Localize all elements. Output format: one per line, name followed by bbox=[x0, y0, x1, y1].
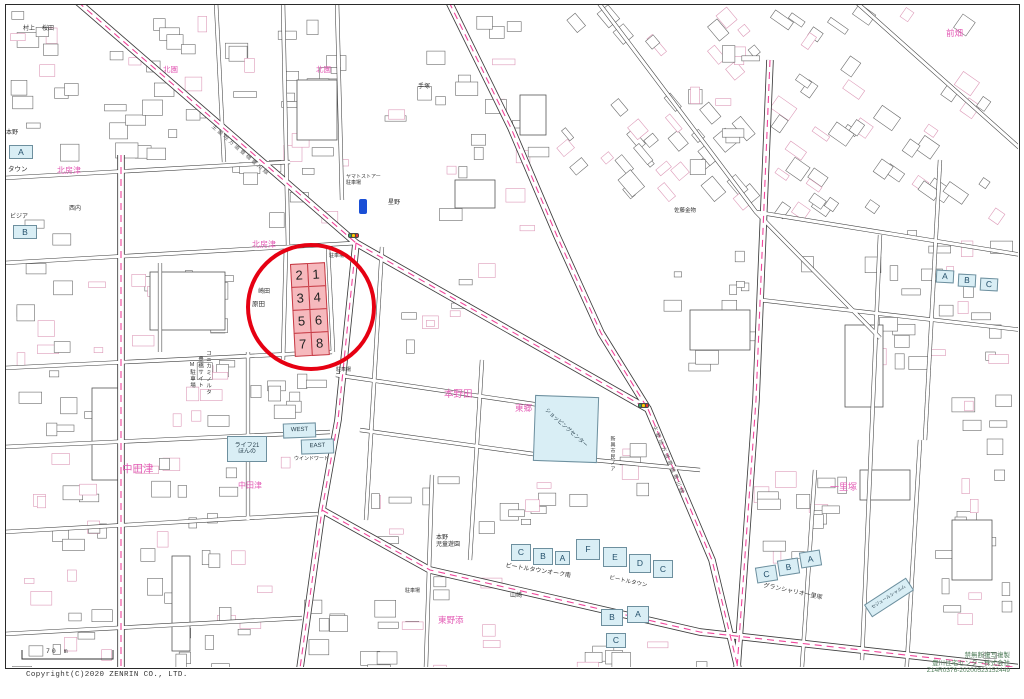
poi-label: M駐車場 bbox=[189, 362, 195, 389]
area-label: 北房津 bbox=[252, 241, 276, 250]
poi-label: 星野 bbox=[388, 200, 400, 207]
attribution-line-3: Z14R0376-20200523152449 bbox=[927, 667, 1010, 675]
poi-label: ヤマトストアー 駐車場 bbox=[346, 175, 381, 186]
poi-label: 村上 bbox=[23, 26, 35, 33]
highlight-circle bbox=[246, 243, 376, 371]
zenrin-map-page: WESTEASTライフ21 ほんのショッピングセンターセジュールシャルムCBAF… bbox=[0, 0, 1024, 699]
scale-bar-label: 70 m bbox=[46, 648, 70, 655]
poi-label: 駐車場 bbox=[405, 589, 420, 595]
poi-label: ビートルタウン bbox=[609, 575, 648, 589]
area-label: 中田津 bbox=[238, 482, 262, 491]
poi-label: ウインドワード bbox=[294, 457, 329, 463]
area-label: 東郷 bbox=[515, 404, 532, 413]
road-label: 主要地方道豊橋豊川線 bbox=[210, 124, 271, 178]
attribution-line-1: 禁無断複写複製 bbox=[927, 652, 1010, 660]
map-labels-layer: 北房津北園北園北房津中田津中田津本野田東郷前畑一里塚東野添村上桜田本野タウンビジ… bbox=[0, 0, 1024, 699]
attribution-line-2: 豊川住宅センター株式会社 bbox=[927, 660, 1010, 668]
poi-label: 本野 bbox=[6, 130, 18, 137]
poi-label: 佐藤金物 bbox=[674, 208, 696, 214]
copyright-text: Copyright(C)2020 ZENRIN CO., LTD. bbox=[26, 671, 188, 679]
area-label: 中田津 bbox=[122, 464, 154, 476]
attribution-text: 禁無断複写複製 豊川住宅センター株式会社 Z14R0376-2020052315… bbox=[927, 652, 1010, 675]
area-label: 前畑 bbox=[946, 29, 963, 38]
poi-label: 手塚 bbox=[418, 84, 430, 91]
poi-label: 山崎 bbox=[510, 593, 522, 600]
poi-label: ビジア bbox=[10, 214, 28, 221]
poi-label: 西内 bbox=[69, 206, 81, 213]
poi-label: 豊橋サイト bbox=[197, 356, 203, 389]
poi-label: グランシャリオ一里塚 bbox=[763, 583, 823, 602]
poi-label: コニカミノルタ bbox=[205, 350, 211, 396]
area-label: 一里塚 bbox=[830, 483, 857, 493]
poi-label: ビートルタウンオーク南 bbox=[505, 563, 571, 580]
area-label: 北園 bbox=[316, 66, 331, 74]
poi-label: 駐車場 bbox=[336, 368, 351, 374]
poi-label: タウン bbox=[8, 166, 28, 173]
area-label: 東野添 bbox=[438, 616, 464, 625]
road-label: 主要地方道豊橋豊川線 bbox=[650, 425, 685, 496]
area-label: 北房津 bbox=[57, 167, 81, 176]
poi-label: 新興市民ノア bbox=[609, 436, 615, 472]
area-label: 北園 bbox=[163, 66, 178, 74]
area-label: 本野田 bbox=[444, 390, 473, 400]
poi-label: 桜田 bbox=[42, 26, 54, 33]
poi-label: 本野 児童遊園 bbox=[436, 535, 460, 548]
